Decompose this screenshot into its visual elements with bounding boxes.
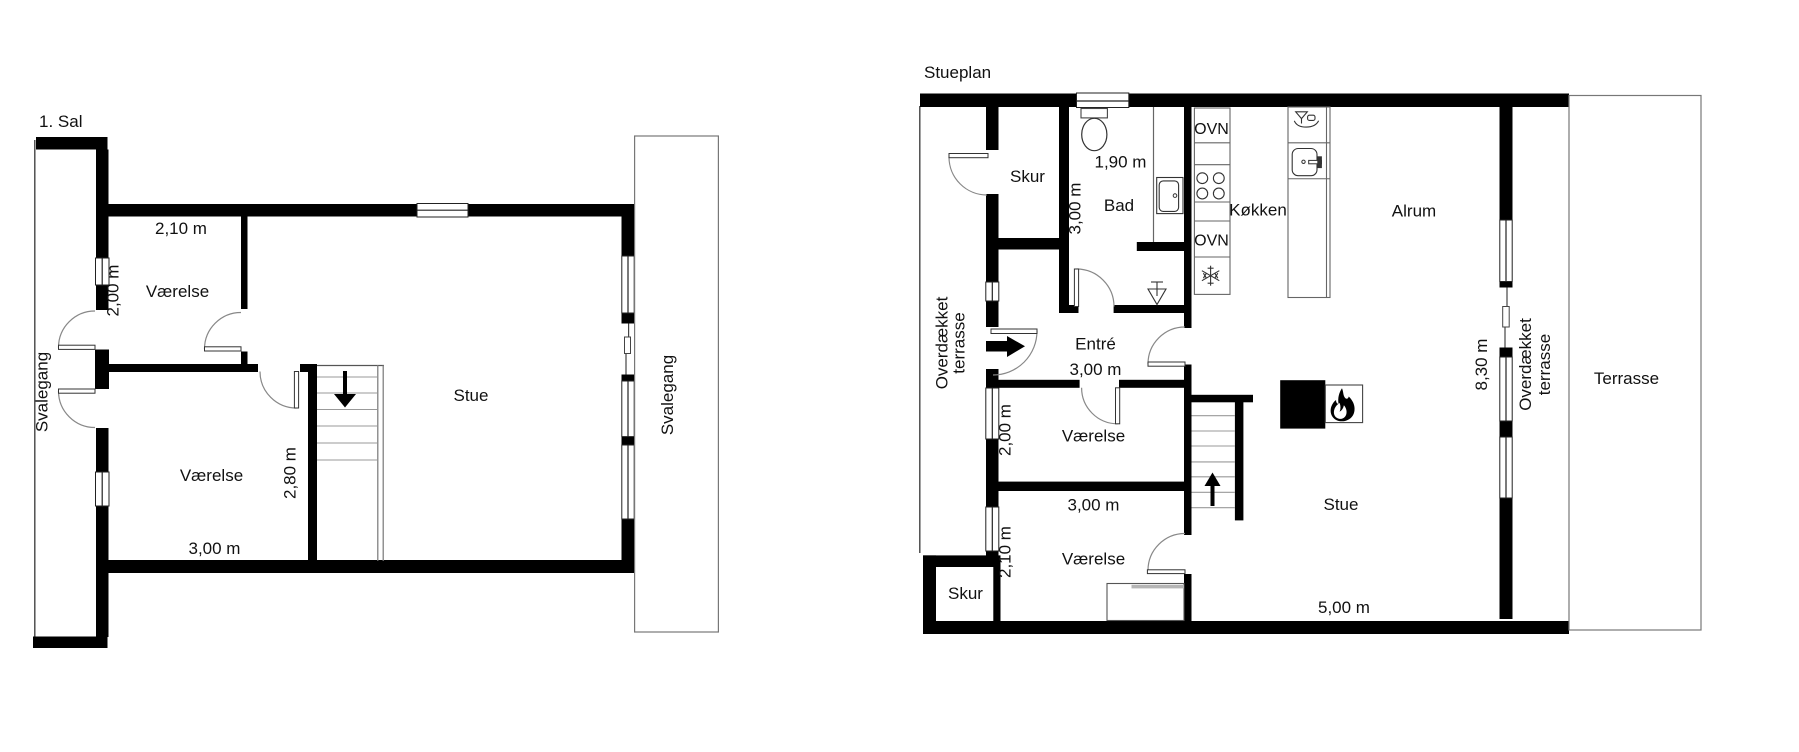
svg-text:2,80 m: 2,80 m	[281, 447, 300, 499]
svg-text:Køkken: Køkken	[1229, 201, 1287, 220]
svg-text:Skur: Skur	[948, 584, 983, 603]
svg-text:Svalegang: Svalegang	[658, 355, 677, 435]
svg-text:3,00 m: 3,00 m	[189, 539, 241, 558]
svg-text:Stue: Stue	[454, 386, 489, 405]
svg-text:Alrum: Alrum	[1392, 202, 1436, 221]
svg-text:Stue: Stue	[1324, 495, 1359, 514]
svg-text:1,90 m: 1,90 m	[1095, 153, 1147, 172]
svg-text:Værelse: Værelse	[180, 466, 243, 485]
svg-text:Værelse: Værelse	[1062, 550, 1125, 569]
svg-text:OVN: OVN	[1194, 121, 1229, 138]
svg-text:2,00 m: 2,00 m	[104, 265, 123, 317]
svg-text:terrasse: terrasse	[1535, 334, 1554, 395]
svg-text:Stueplan: Stueplan	[924, 63, 991, 82]
svg-text:OVN: OVN	[1194, 233, 1229, 250]
svg-text:5,00 m: 5,00 m	[1318, 598, 1370, 617]
svg-text:Værelse: Værelse	[146, 282, 209, 301]
svg-text:3,00 m: 3,00 m	[1066, 183, 1085, 235]
svg-text:3,00 m: 3,00 m	[1070, 360, 1122, 379]
svg-text:terrasse: terrasse	[950, 312, 969, 373]
svg-text:Terrasse: Terrasse	[1594, 369, 1659, 388]
svg-text:Svalegang: Svalegang	[33, 352, 52, 432]
svg-text:8,30 m: 8,30 m	[1472, 339, 1491, 391]
svg-text:2,10 m: 2,10 m	[996, 526, 1015, 578]
svg-text:1. Sal: 1. Sal	[39, 112, 82, 131]
svg-text:2,00 m: 2,00 m	[996, 404, 1015, 456]
svg-text:Overdækket: Overdækket	[1516, 318, 1535, 411]
svg-text:Bad: Bad	[1104, 196, 1134, 215]
svg-text:Værelse: Værelse	[1062, 427, 1125, 446]
svg-text:3,00 m: 3,00 m	[1068, 496, 1120, 515]
svg-text:2,10 m: 2,10 m	[155, 219, 207, 238]
svg-text:Skur: Skur	[1010, 167, 1045, 186]
svg-text:Entré: Entré	[1075, 335, 1116, 354]
